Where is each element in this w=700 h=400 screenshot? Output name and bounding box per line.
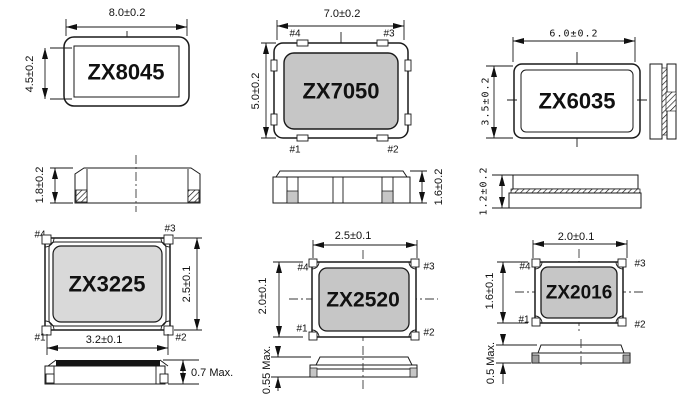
zx7050-pad4-label: #4 xyxy=(289,29,301,40)
zx3225-length-dim-text: 3.2±0.1 xyxy=(86,334,123,346)
zx8045-length-dim-text: 8.0±0.2 xyxy=(109,7,146,19)
zx7050-width-dim-text: 5.0±0.2 xyxy=(250,73,262,110)
zx7050-length-dim-text: 7.0±0.2 xyxy=(324,8,361,20)
zx2016-side-view xyxy=(532,339,630,367)
zx6035-end-view xyxy=(650,64,676,139)
zx2520-height-extension-lines xyxy=(271,357,311,377)
zx7050-part-label: ZX7050 xyxy=(302,79,379,104)
zx2016-width-dim-text: 1.6±0.1 xyxy=(484,273,496,310)
zx2520-length-dim-text: 2.5±0.1 xyxy=(335,230,372,242)
zx2520-pad3-label: #3 xyxy=(423,262,435,273)
zx2520-side-base xyxy=(310,365,417,377)
zx7050-height-dim-text: 1.6±0.2 xyxy=(433,169,445,206)
zx3225-pad1-label: #1 xyxy=(34,333,46,344)
zx2520-side-pad-right xyxy=(410,368,417,377)
zx7050-pad3-label: #3 xyxy=(383,29,395,40)
zx6035-side-lid xyxy=(513,175,638,189)
zx3225-side-view xyxy=(45,360,168,384)
zx8045-side-pad-right xyxy=(188,190,199,202)
zx2016-pad4-label: #4 xyxy=(519,262,531,273)
zx7050-side-lid xyxy=(276,171,407,177)
zx6035-height-dim-text: 1.2±0.2 xyxy=(479,166,490,215)
zx3225-part-label: ZX3225 xyxy=(68,272,145,297)
zx2016-figure: 2.0±0.1 #4 #3 ZX2016 #1 #2 1.6±0.1 0.5 M… xyxy=(484,231,646,384)
zx3225-side-base xyxy=(45,366,165,384)
zx6035-part-label: ZX6035 xyxy=(538,89,615,114)
zx6035-end-view-base xyxy=(650,64,662,139)
zx8045-figure: 8.0±0.2 ZX8045 4.5±0.2 1.8±0.2 xyxy=(24,7,200,212)
zx2520-pad1-label: #1 xyxy=(296,324,308,335)
zx8045-height-extension-lines xyxy=(50,168,73,203)
zx3225-figure: #4 #3 ZX3225 #1 #2 2.5±0.1 3.2±0.1 0.7 M xyxy=(34,224,233,385)
zx2016-length-dim-text: 2.0±0.1 xyxy=(558,231,595,243)
zx6035-side-view xyxy=(509,175,641,208)
zx7050-side-pad-right xyxy=(382,191,393,203)
outline-drawings-svg: 8.0±0.2 ZX8045 4.5±0.2 1.8±0.2 7.0±0.2 #… xyxy=(0,0,700,400)
zx8045-side-body xyxy=(75,168,200,203)
zx6035-figure: 6.0±0.2 ZX6035 3.5±0.2 1.2±0.2 xyxy=(479,29,677,216)
zx7050-height-extension-lines xyxy=(410,171,427,203)
zx2520-pad4-label: #4 xyxy=(297,263,309,274)
zx7050-figure: 7.0±0.2 #4 #3 ZX7050 #1 #2 5.0±0.2 xyxy=(250,8,445,205)
zx8045-part-label: ZX8045 xyxy=(87,60,164,85)
zx2520-length-extension-lines xyxy=(313,240,417,258)
zx2520-height-dim-text: 0.55 Max. xyxy=(261,346,273,394)
zx2016-part-label: ZX2016 xyxy=(546,283,613,304)
zx2016-height-extension-lines xyxy=(496,345,537,363)
zx3225-height-dim-text: 0.7 Max. xyxy=(191,367,233,379)
zx2016-height-dim-text: 0.5 Max. xyxy=(485,342,497,384)
zx2520-side-lid xyxy=(316,357,412,365)
package-outline-drawing-sheet: 8.0±0.2 ZX8045 4.5±0.2 1.8±0.2 7.0±0.2 #… xyxy=(0,0,700,400)
zx8045-side-view xyxy=(75,155,200,212)
zx3225-width-dim-text: 2.5±0.1 xyxy=(181,266,193,303)
zx8045-length-extension-lines xyxy=(66,19,187,36)
zx6035-length-dim-text: 6.0±0.2 xyxy=(549,29,598,40)
zx8045-width-dim-text: 4.5±0.2 xyxy=(24,56,36,93)
zx6035-side-base xyxy=(509,193,641,208)
zx2016-pad1-label: #1 xyxy=(518,315,530,326)
zx3225-pad2-label: #2 xyxy=(175,333,187,344)
zx8045-height-dim-text: 1.8±0.2 xyxy=(34,167,46,204)
zx6035-side-seam-hatch xyxy=(511,189,640,193)
zx3225-pad3-label: #3 xyxy=(164,224,176,235)
zx2016-pad2-label: #2 xyxy=(634,320,646,331)
zx6035-width-dim-text: 3.5±0.2 xyxy=(481,76,492,125)
zx2520-pad2-label: #2 xyxy=(423,328,435,339)
zx3225-side-pad-left xyxy=(46,374,54,383)
zx8045-side-pad-left xyxy=(76,190,87,202)
zx2016-pad3-label: #3 xyxy=(634,259,646,270)
zx3225-side-lid xyxy=(56,360,160,366)
zx7050-pad1-label: #1 xyxy=(289,145,301,156)
zx2520-side-pad-left xyxy=(310,368,317,377)
zx3225-side-pad-right xyxy=(160,374,168,383)
zx2016-side-pad-right xyxy=(623,355,630,363)
zx7050-side-view xyxy=(273,171,410,203)
zx2520-side-view xyxy=(310,346,417,391)
zx2520-part-label: ZX2520 xyxy=(326,289,400,312)
zx7050-side-pad-left xyxy=(287,191,298,203)
zx7050-pad2-label: #2 xyxy=(387,145,399,156)
zx2520-figure: 2.5±0.1 #4 #3 ZX2520 #1 #2 2.0±0.1 xyxy=(257,230,438,394)
zx2016-side-pad-left xyxy=(532,355,539,363)
zx6035-end-view-pad-hatch xyxy=(666,92,676,111)
zx2520-width-dim-text: 2.0±0.1 xyxy=(257,278,269,315)
